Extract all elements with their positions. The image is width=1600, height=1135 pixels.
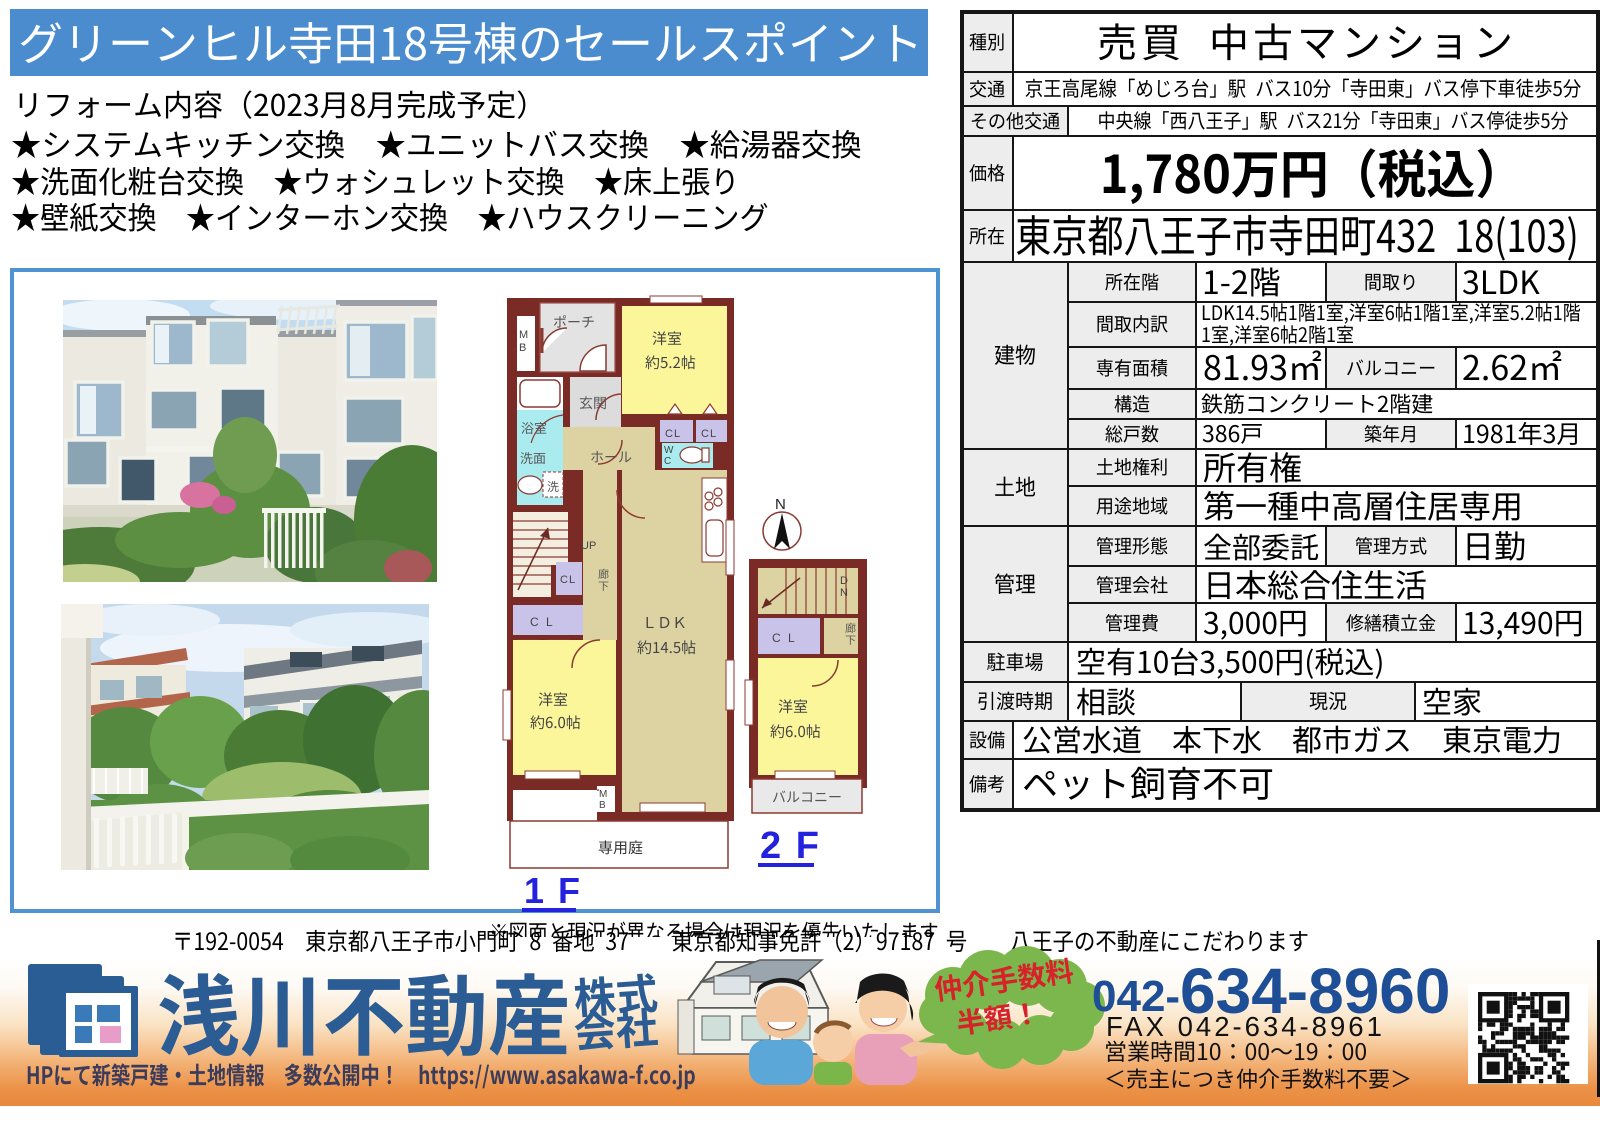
svg-text:M: M [599,789,607,800]
svg-text:M: M [519,329,528,341]
svg-text:CL: CL [665,428,681,440]
svg-text:CL: CL [560,574,576,586]
svg-text:1 F: 1 F [524,870,582,911]
svg-text:W: W [664,445,674,456]
svg-text:C: C [664,456,671,467]
svg-text:2 F: 2 F [760,825,821,867]
svg-text:B: B [599,800,606,811]
svg-text:D: D [840,575,848,587]
svg-text:CL: CL [701,428,717,440]
svg-text:N: N [840,587,848,599]
svg-text:FAX 042-634-8961: FAX 042-634-8961 [1106,1011,1385,1042]
svg-text:B: B [519,342,526,354]
svg-text:N: N [775,496,786,513]
svg-text:C L: C L [530,615,555,629]
svg-text:UP: UP [581,540,596,552]
svg-text:C L: C L [772,631,797,645]
